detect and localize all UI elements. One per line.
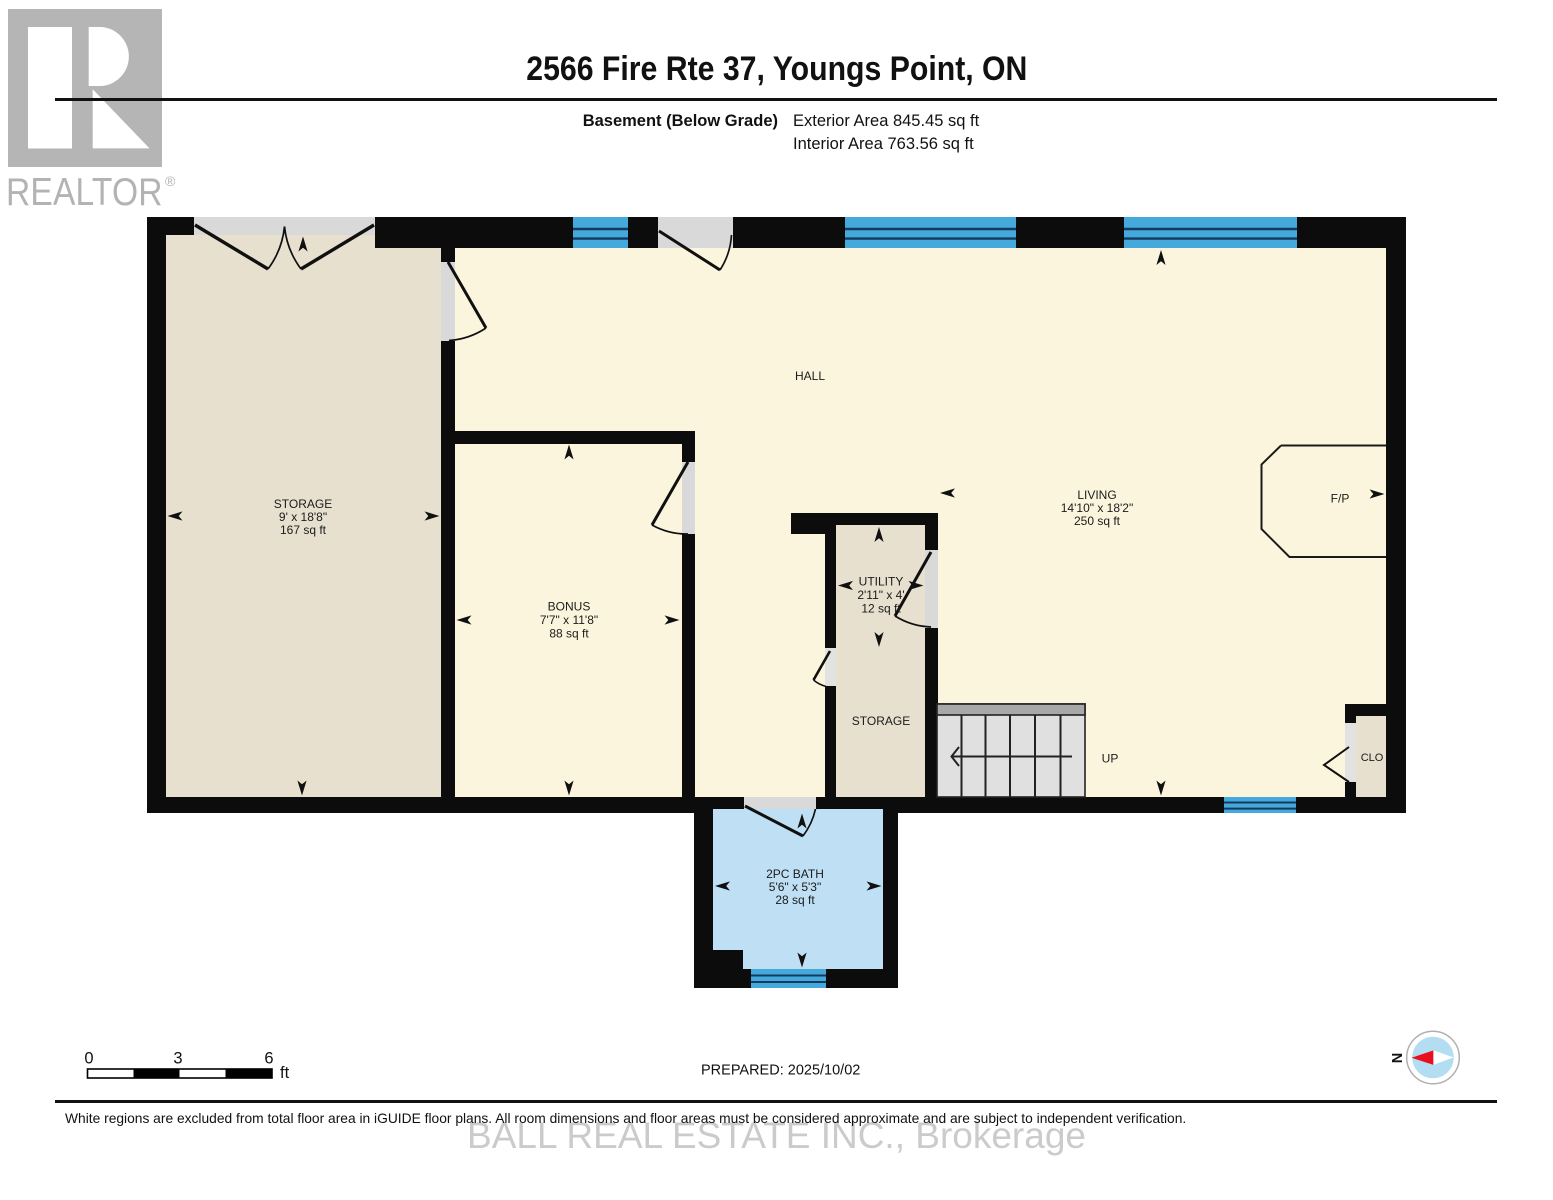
svg-text:0: 0 bbox=[84, 1050, 93, 1068]
svg-text:CLO: CLO bbox=[1361, 752, 1384, 764]
svg-text:LIVING: LIVING bbox=[1077, 488, 1116, 502]
svg-text:7'7" x 11'8": 7'7" x 11'8" bbox=[540, 613, 598, 627]
svg-text:STORAGE: STORAGE bbox=[852, 714, 910, 728]
svg-text:2PC BATH: 2PC BATH bbox=[766, 867, 824, 881]
svg-text:88 sq ft: 88 sq ft bbox=[549, 627, 589, 641]
svg-text:14'10" x 18'2": 14'10" x 18'2" bbox=[1061, 501, 1134, 515]
svg-text:167 sq ft: 167 sq ft bbox=[280, 523, 327, 537]
svg-text:6: 6 bbox=[264, 1050, 273, 1068]
svg-text:12 sq ft: 12 sq ft bbox=[861, 602, 901, 616]
svg-text:5'6" x 5'3": 5'6" x 5'3" bbox=[769, 880, 821, 894]
svg-text:HALL: HALL bbox=[795, 369, 825, 383]
svg-text:N: N bbox=[1390, 1053, 1406, 1063]
svg-text:28 sq ft: 28 sq ft bbox=[775, 893, 815, 907]
svg-text:PREPARED: 2025/10/02: PREPARED: 2025/10/02 bbox=[701, 1063, 860, 1079]
svg-text:STORAGE: STORAGE bbox=[274, 497, 332, 511]
svg-text:2'11" x 4': 2'11" x 4' bbox=[857, 588, 904, 602]
svg-text:9' x 18'8": 9' x 18'8" bbox=[279, 510, 327, 524]
svg-text:250 sq ft: 250 sq ft bbox=[1074, 514, 1121, 528]
svg-text:F/P: F/P bbox=[1331, 492, 1350, 506]
svg-text:UP: UP bbox=[1102, 752, 1119, 766]
svg-text:UTILITY: UTILITY bbox=[859, 575, 904, 589]
svg-text:3: 3 bbox=[173, 1050, 182, 1068]
svg-text:ft: ft bbox=[280, 1064, 290, 1082]
svg-text:BONUS: BONUS bbox=[548, 600, 591, 614]
